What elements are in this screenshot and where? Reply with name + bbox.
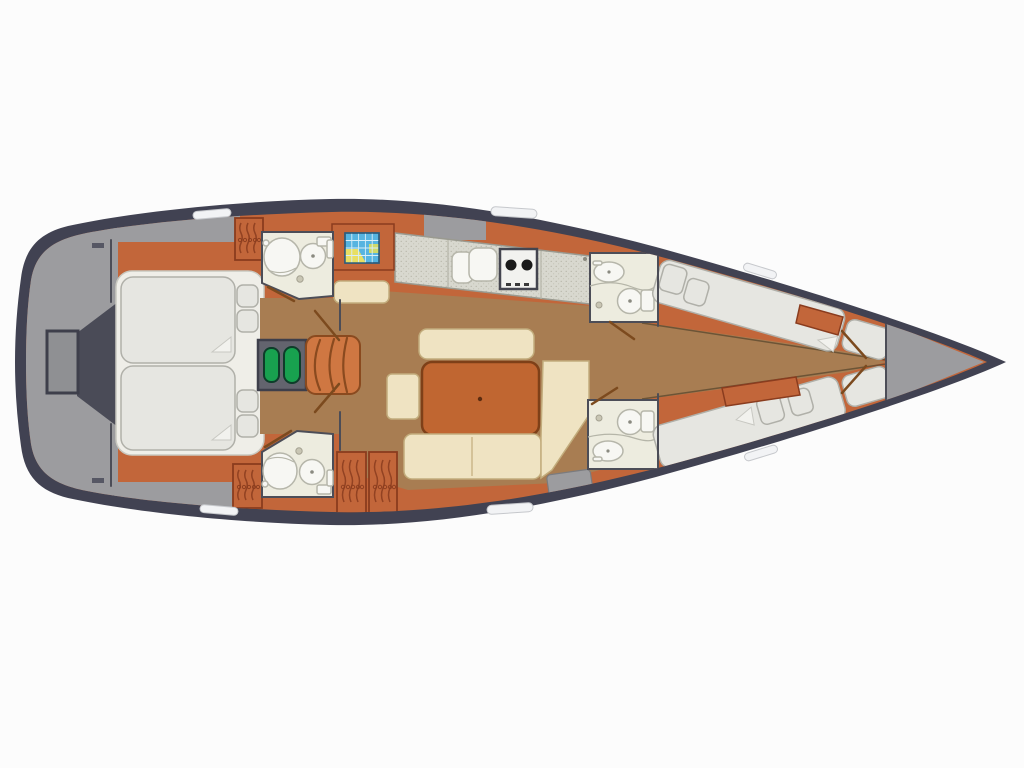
- chart-table: [345, 233, 379, 263]
- yacht-floor-plan: [0, 0, 1024, 768]
- companionway: [258, 336, 360, 394]
- nav-seat: [334, 281, 389, 303]
- toilet-cistern-pipe: [327, 470, 333, 486]
- floor-drain: [596, 302, 602, 308]
- nav-station: [332, 224, 394, 303]
- aft-cabin: [116, 271, 264, 455]
- table-leg-dot: [478, 397, 482, 401]
- toilet-dot: [628, 420, 632, 424]
- hanging-locker-salon-right: [369, 452, 397, 513]
- hanging-locker-salon-left: [337, 452, 366, 513]
- toilet-dot: [311, 254, 315, 258]
- stern-fitting-top: [92, 243, 104, 248]
- pillow: [237, 390, 258, 412]
- pillow: [237, 415, 258, 437]
- settee-top: [419, 329, 534, 359]
- stove-knobs: [506, 283, 529, 286]
- galley-sink-right: [469, 248, 497, 281]
- aft-head-bottom: [262, 431, 333, 497]
- step-pad: [264, 348, 279, 382]
- floor-drain: [296, 448, 302, 454]
- counter-latch: [583, 257, 587, 261]
- aft-head-top: [262, 232, 333, 301]
- basin-faucet: [593, 457, 602, 461]
- step-pad: [284, 347, 300, 383]
- burner: [506, 260, 517, 271]
- mid-head-bottom: [588, 388, 658, 469]
- toilet-cistern: [641, 411, 654, 432]
- shower-faucet: [262, 481, 268, 487]
- hanging-locker-aft-bottom: [233, 464, 262, 508]
- burner: [522, 260, 533, 271]
- basin-dot: [606, 449, 609, 452]
- pillow: [237, 285, 258, 307]
- basin-dot: [607, 270, 610, 273]
- stool: [387, 374, 419, 419]
- stern-fitting-bottom: [92, 478, 104, 483]
- basin-faucet: [593, 261, 602, 265]
- floor-drain: [297, 276, 303, 282]
- toilet-dot: [628, 299, 632, 303]
- floor-plan-canvas: [0, 0, 1024, 768]
- toilet-cistern-pipe: [327, 240, 333, 258]
- toilet-dot: [310, 470, 314, 474]
- shower-faucet: [263, 240, 269, 246]
- pillow: [237, 310, 258, 332]
- hanging-locker-aft-top: [235, 218, 263, 260]
- floor-drain: [596, 415, 602, 421]
- swim-platform-step: [47, 331, 78, 393]
